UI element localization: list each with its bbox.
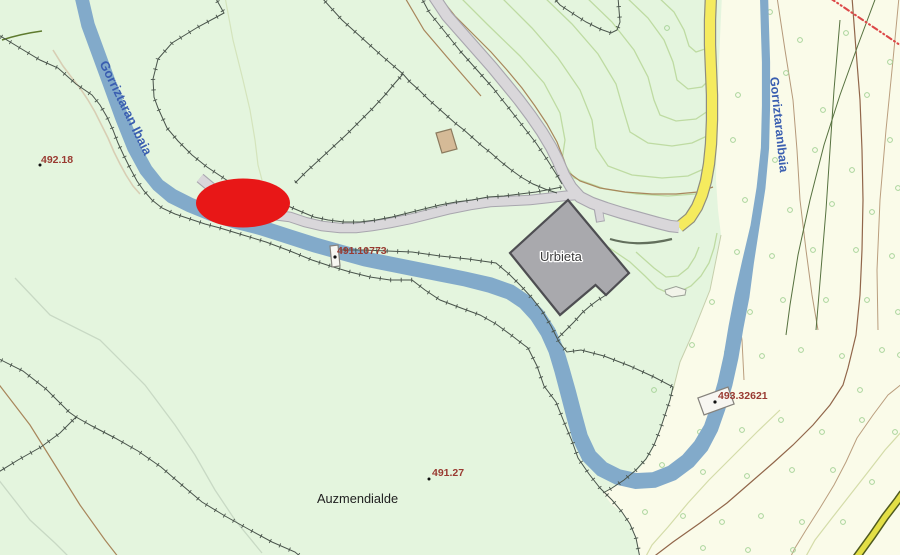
svg-text:Auzmendialde: Auzmendialde [317, 491, 398, 506]
svg-text:492.18: 492.18 [41, 154, 73, 166]
svg-text:491.27: 491.27 [432, 467, 464, 479]
svg-text:Urbieta: Urbieta [540, 249, 583, 264]
svg-text:493.32621: 493.32621 [718, 390, 768, 402]
svg-text:491.10773: 491.10773 [337, 245, 387, 257]
